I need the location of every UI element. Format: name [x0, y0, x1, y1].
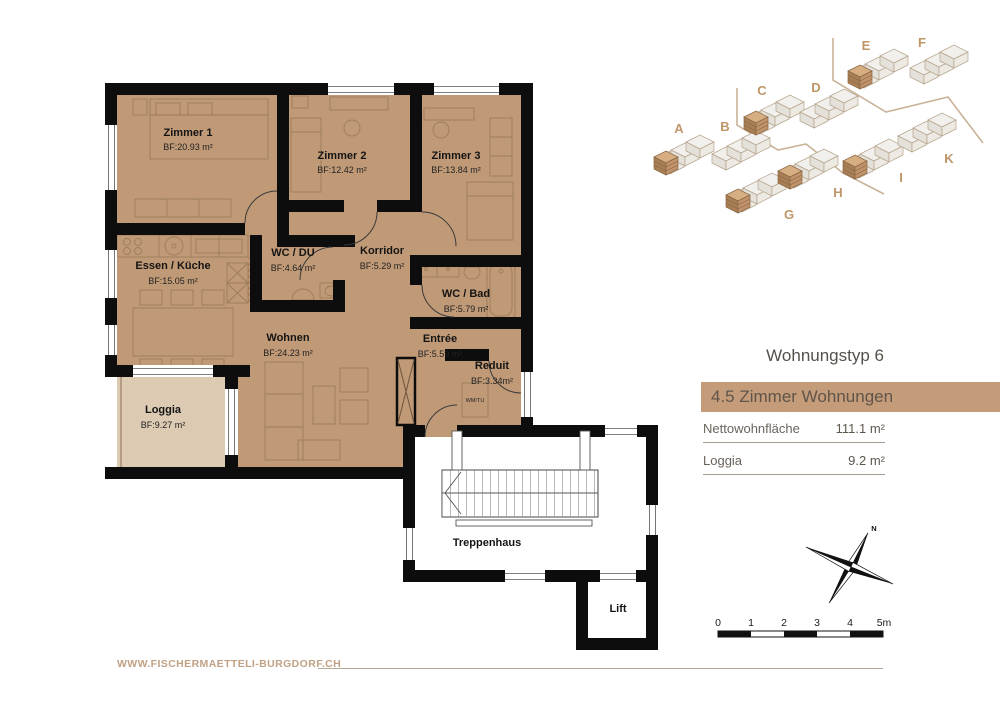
compass-rose-icon: N — [806, 524, 893, 603]
site-label-h: H — [833, 185, 842, 200]
room-area-kueche: BF:15.05 m² — [148, 276, 198, 286]
site-label-i: I — [899, 170, 903, 185]
site-label-a: A — [674, 121, 684, 136]
site-label-d: D — [811, 80, 820, 95]
scale-tick-3: 3 — [814, 617, 820, 629]
site-building-a — [654, 135, 714, 175]
site-building-f — [910, 45, 968, 84]
brochure-page: Zimmer 1 BF:20.93 m² Zimmer 2 BF:12.42 m… — [0, 0, 1000, 714]
info-row-label: Nettowohnfläche — [703, 421, 800, 436]
apartment-size-banner: 4.5 Zimmer Wohnungen — [701, 382, 1000, 412]
footer-divider — [318, 668, 883, 669]
apartment-type-title: Wohnungstyp 6 — [766, 346, 884, 366]
site-building-d — [800, 89, 858, 128]
room-area-reduit: BF:3.34m² — [471, 376, 513, 386]
site-label-e: E — [862, 38, 871, 53]
site-label-b: B — [720, 119, 729, 134]
scale-tick-0: 0 — [715, 617, 721, 629]
info-row-value: 9.2 m² — [848, 453, 885, 468]
room-area-korridor: BF:5.29 m² — [360, 261, 405, 271]
compass-north-label: N — [871, 524, 876, 533]
room-area-entree: BF:5.59 m² — [418, 349, 463, 359]
site-building-h — [778, 149, 838, 189]
scale-bar: 0 1 2 3 4 5m — [715, 617, 891, 637]
info-row-nettowohnflaeche: Nettowohnfläche 111.1 m² — [703, 421, 885, 443]
room-label-korridor: Korridor — [360, 245, 405, 257]
label-lift: Lift — [609, 603, 626, 615]
room-area-zimmer-2: BF:12.42 m² — [317, 165, 367, 175]
stairwell — [442, 431, 598, 526]
room-label-wc-bad: WC / Bad — [442, 288, 490, 300]
room-label-wc-du: WC / DU — [271, 247, 314, 259]
label-treppenhaus: Treppenhaus — [453, 537, 521, 549]
site-label-k: K — [944, 151, 954, 166]
info-row-label: Loggia — [703, 453, 742, 468]
room-area-wc-bad: BF:5.79 m² — [444, 304, 489, 314]
scale-tick-2: 2 — [781, 617, 787, 629]
site-building-g — [726, 173, 786, 213]
website-link[interactable]: WWW.FISCHERMAETTELI-BURGDORF.CH — [117, 658, 341, 670]
room-label-entree: Entrée — [423, 333, 457, 345]
scale-tick-4: 4 — [847, 617, 853, 629]
room-label-kueche: Essen / Küche — [135, 260, 210, 272]
site-plan: A B C D E F G H I K — [654, 35, 983, 222]
info-row-value: 111.1 m² — [836, 421, 885, 436]
scale-tick-5: 5m — [877, 617, 892, 629]
room-area-loggia: BF:9.27 m² — [141, 420, 186, 430]
info-row-loggia: Loggia 9.2 m² — [703, 453, 885, 475]
room-label-zimmer-2: Zimmer 2 — [318, 150, 367, 162]
site-label-c: C — [757, 83, 767, 98]
room-area-zimmer-3: BF:13.84 m² — [431, 165, 481, 175]
site-building-k — [898, 113, 956, 152]
room-area-wohnen: BF:24.23 m² — [263, 348, 313, 358]
site-building-e — [848, 49, 908, 89]
label-wm-tu: WM/TU — [466, 398, 485, 404]
room-label-reduit: Reduit — [475, 360, 510, 372]
room-area-wc-du: BF:4.64 m² — [271, 263, 316, 273]
site-label-f: F — [918, 35, 926, 50]
room-area-zimmer-1: BF:20.93 m² — [163, 142, 213, 152]
room-label-wohnen: Wohnen — [266, 332, 309, 344]
room-label-loggia: Loggia — [145, 404, 182, 416]
room-label-zimmer-3: Zimmer 3 — [432, 150, 481, 162]
site-building-c — [744, 95, 804, 135]
site-label-g: G — [784, 207, 794, 222]
scale-tick-1: 1 — [748, 617, 754, 629]
room-label-zimmer-1: Zimmer 1 — [164, 127, 213, 139]
site-building-i — [843, 139, 903, 179]
site-building-b — [712, 131, 770, 170]
shaft — [397, 358, 415, 425]
